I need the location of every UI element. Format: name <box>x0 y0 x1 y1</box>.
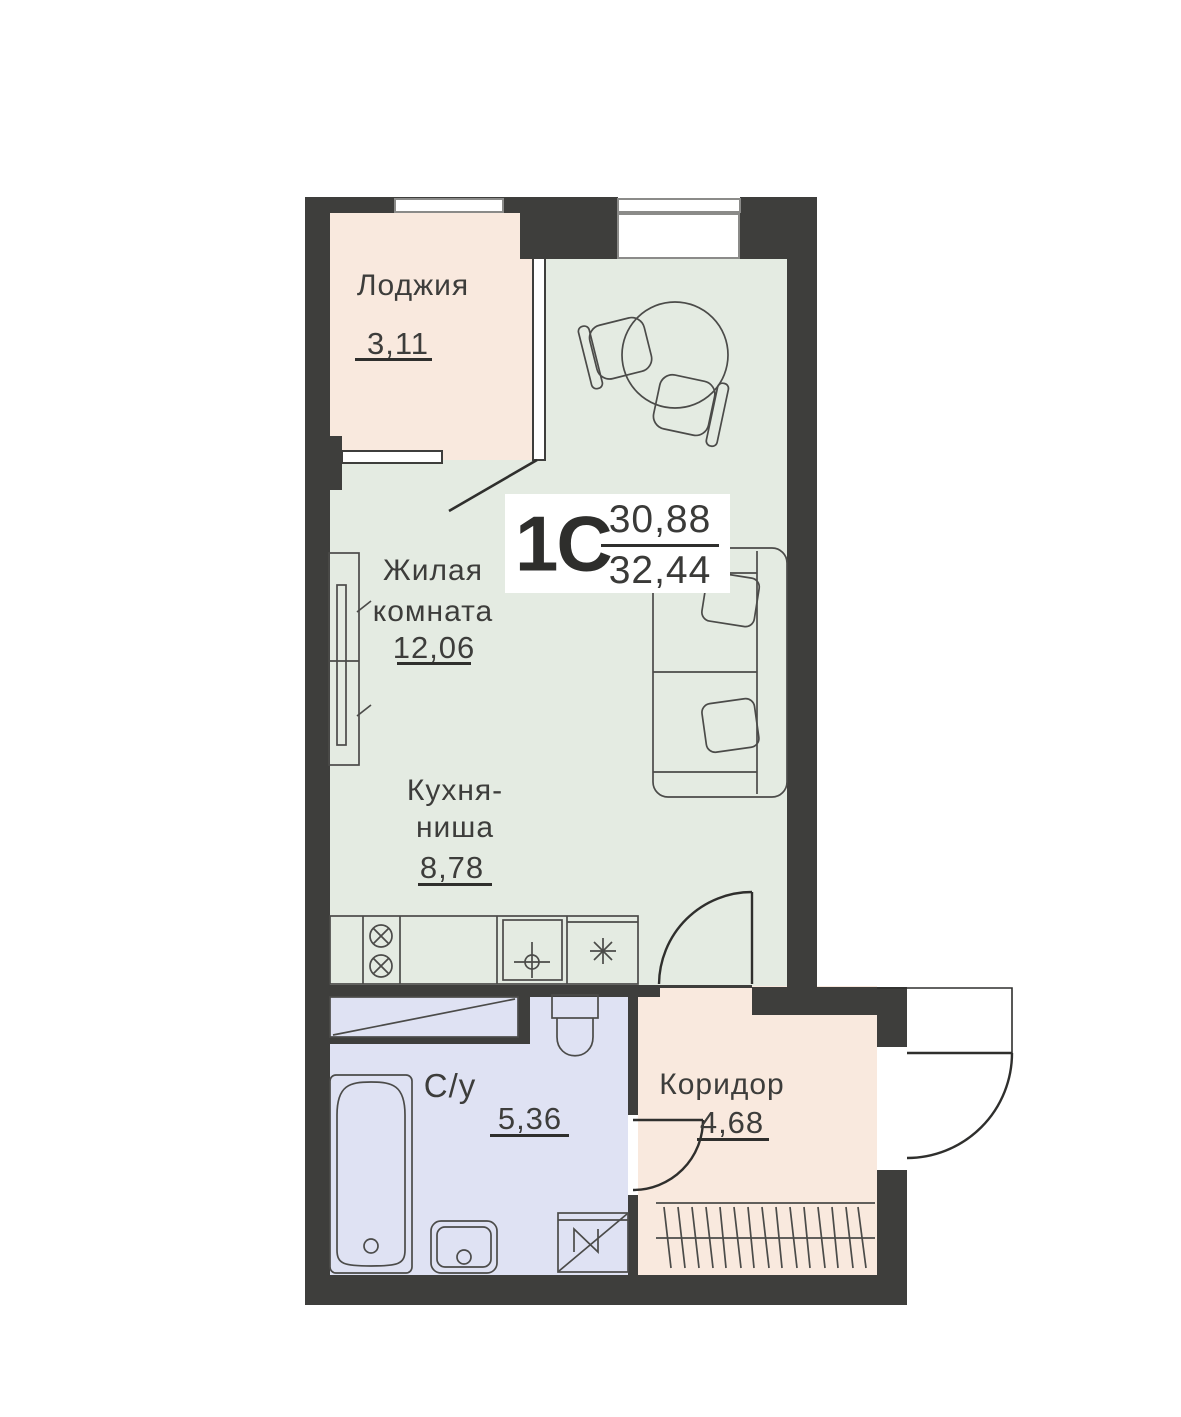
wall-loggia-stub <box>330 436 342 490</box>
kitchen-label-line1: Кухня- <box>407 774 503 808</box>
area-underline <box>490 1134 569 1137</box>
floor-plan-svg <box>0 0 1181 1417</box>
bathroom-area: 5,36 <box>498 1101 562 1137</box>
unit-living-area: 30,88 <box>601 498 719 542</box>
loggia-label: Лоджия <box>357 269 469 303</box>
area-underline <box>397 662 471 665</box>
wall-threshold-line <box>660 985 752 988</box>
wall-corridor-north <box>752 987 877 1015</box>
wall-niche-bar <box>330 1037 530 1044</box>
loggia-partition <box>533 258 545 460</box>
wall-corridor-corner <box>877 987 907 1047</box>
wall-bottom <box>305 1275 907 1305</box>
corridor-area: 4,68 <box>700 1105 764 1141</box>
area-underline <box>418 883 492 886</box>
wall-right <box>787 259 817 990</box>
area-underline <box>697 1138 769 1141</box>
unit-info-box: 1С 30,88 32,44 <box>505 494 730 593</box>
wall-bath-east-upper <box>628 985 638 1115</box>
living-room-label-line2: комната <box>373 595 493 629</box>
kitchen-area: 8,78 <box>420 850 484 886</box>
wall-kitchen-south <box>330 985 660 997</box>
wall-bath-east-lower <box>628 1195 638 1275</box>
fraction-divider <box>601 544 719 547</box>
loggia-floor <box>330 213 533 460</box>
kitchen-label-line2: ниша <box>416 811 494 845</box>
corridor-label: Коридор <box>659 1068 784 1102</box>
loggia-south-window-sill <box>342 451 442 463</box>
wall-top-pier <box>520 197 618 259</box>
loggia-area: 3,11 <box>367 326 429 362</box>
wall-niche-stub <box>518 997 530 1044</box>
unit-type: 1С <box>515 498 611 589</box>
floor-plan-page: Лоджия 3,11 Жилая комната 12,06 Кухня- н… <box>0 0 1181 1417</box>
living-room-label-line1: Жилая <box>383 554 483 588</box>
living-window-outer <box>618 199 740 212</box>
unit-area-fraction: 30,88 32,44 <box>601 498 719 592</box>
bathroom-label: С/у <box>424 1067 477 1105</box>
living-window-pane <box>618 214 739 258</box>
wall-top-right <box>740 197 817 259</box>
wall-left <box>305 197 330 1305</box>
living-room-area: 12,06 <box>393 630 476 666</box>
area-underline <box>355 358 432 361</box>
unit-total-area: 32,44 <box>601 549 719 593</box>
loggia-glazing-window <box>395 199 503 212</box>
